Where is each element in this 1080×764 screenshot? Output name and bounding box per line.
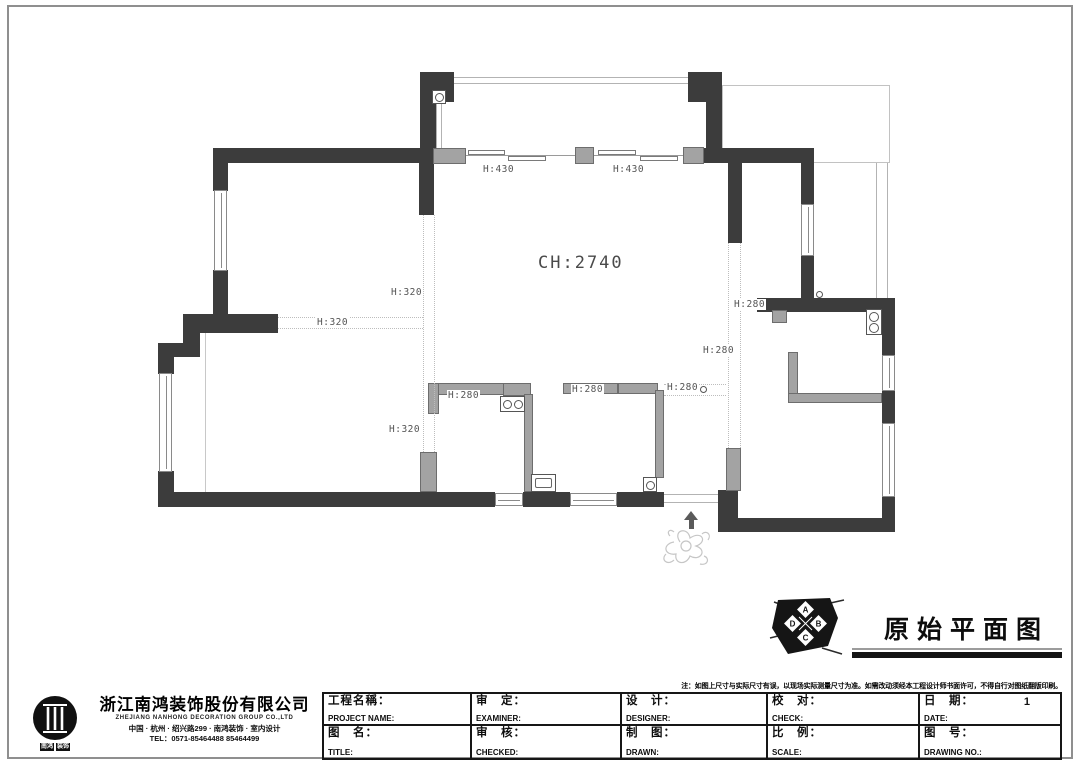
company-services: 中国 · 杭州 · 绍兴路299 · 南鸿装饰 · 室内设计 — [89, 724, 320, 734]
disclaimer-note: 注：如图上尺寸与实际尺寸有误，以现场实际测量尺寸为准。如需改动须经本工程设计师书… — [681, 681, 1062, 691]
wall-segment — [882, 497, 895, 532]
wall-segment — [213, 148, 434, 163]
company-logo-badge: 南鸿 — [40, 743, 54, 751]
cell-date: 日 期： DATE: 1 — [920, 694, 1060, 726]
wall-segment — [801, 255, 814, 302]
door-stop-marker — [816, 291, 823, 298]
door-stop-marker — [700, 386, 707, 393]
beam-dashed-line — [740, 243, 741, 448]
logo-letter-b: B — [816, 620, 822, 629]
window — [882, 355, 895, 391]
height-label: H:280 — [666, 382, 699, 393]
stove-fixture — [866, 309, 882, 335]
height-label: H:320 — [316, 317, 349, 328]
height-label: H:280 — [702, 345, 735, 356]
beam-dashed-line — [434, 215, 435, 452]
sliding-door-leaf — [640, 156, 678, 161]
cell-drawn: 制 图： DRAWN: — [622, 726, 768, 758]
window — [159, 373, 172, 472]
sliding-door-leaf — [598, 150, 636, 155]
sliding-door-leaf — [468, 150, 505, 155]
sliding-door-leaf — [508, 156, 546, 161]
partition-wall-segment — [788, 393, 882, 403]
logo-letter-a: A — [803, 606, 809, 615]
date-value: 1 — [1024, 696, 1030, 708]
partition-wall-segment — [618, 383, 658, 394]
height-label: H:280 — [571, 384, 604, 395]
compass-logo-icon: A B C D — [766, 594, 846, 660]
cell-project-name: 工程名稱： PROJECT NAME: — [324, 694, 472, 726]
company-tel: TEL：0571-85464488 85464499 — [89, 734, 320, 744]
height-label: H:320 — [388, 424, 421, 435]
company-block: 南鸿 装饰 浙江南鸿装饰股份有限公司 ZHEJIANG NANHONG DECO… — [30, 694, 320, 758]
window — [570, 493, 617, 506]
wall-segment — [420, 72, 436, 152]
beam-dashed-line — [423, 215, 424, 452]
partition-wall-segment — [433, 148, 466, 164]
title-underline — [852, 648, 1062, 650]
wall-segment — [419, 163, 434, 215]
cell-designer: 设 计： DESIGNER: — [622, 694, 768, 726]
floor-drain-fixture — [432, 90, 446, 104]
window — [882, 423, 895, 497]
beam-dashed-line — [278, 317, 423, 318]
cell-checked: 审 核： CHECKED: — [472, 726, 622, 758]
wall-segment — [213, 148, 228, 191]
cell-check: 校 对： CHECK: — [768, 694, 920, 726]
cell-scale: 比 例： SCALE: — [768, 726, 920, 758]
balcony-rail — [453, 77, 689, 84]
partition-wall-segment — [575, 147, 594, 164]
entry-threshold — [664, 494, 719, 503]
title-underline-bold — [852, 652, 1062, 658]
wall-segment — [737, 518, 895, 532]
cell-drawing-no: 图 号： DRAWING NO.: — [920, 726, 1060, 758]
wall-segment — [706, 72, 722, 152]
wall-segment — [698, 148, 814, 163]
plant-sketch-icon — [650, 522, 722, 568]
partition-wall-segment — [772, 310, 787, 323]
drawing-sheet: H:430 H:430 CH:2740 H:320 H:320 H:320 H:… — [0, 0, 1080, 764]
company-name-en: ZHEJIANG NANHONG DECORATION GROUP CO.,LT… — [89, 714, 320, 722]
window — [495, 493, 523, 506]
wall-segment — [728, 163, 742, 243]
wall-segment — [523, 492, 570, 507]
wall-segment — [882, 390, 895, 423]
beam-dashed-line — [278, 328, 423, 329]
height-label: H:320 — [390, 287, 423, 298]
cell-examiner: 审 定： EXAMINER: — [472, 694, 622, 726]
partition-wall-segment — [683, 147, 704, 164]
beam-dashed-line — [664, 395, 726, 396]
company-logo-badge: 装饰 — [56, 743, 70, 751]
wall-segment — [158, 492, 495, 507]
drawing-title: 原始平面图 — [884, 610, 1049, 646]
wall-segment — [158, 343, 174, 374]
partition-wall-segment — [726, 448, 741, 491]
cell-drawing-name: 图 名： TITLE: — [324, 726, 472, 758]
ceiling-height-label: CH:2740 — [538, 253, 624, 273]
company-logo-icon — [31, 694, 79, 742]
washer-fixture — [531, 474, 556, 492]
height-label: H:430 — [482, 164, 515, 175]
wall-segment — [617, 492, 664, 507]
sink-fixture — [500, 396, 525, 412]
window — [214, 190, 227, 271]
partition-wall-segment — [655, 390, 664, 478]
partition-wall-segment — [420, 452, 437, 492]
window — [801, 204, 814, 256]
wall-face-line — [205, 333, 206, 492]
height-label: H:280 — [447, 390, 480, 401]
balcony-rail — [436, 100, 442, 150]
logo-letter-d: D — [790, 620, 796, 629]
exterior-thin-wall — [876, 163, 888, 299]
title-block-table: 工程名稱： PROJECT NAME: 审 定： EXAMINER: 设 计： … — [322, 692, 1062, 760]
wall-segment — [213, 270, 228, 318]
toilet-fixture — [643, 477, 657, 492]
height-label: H:280 — [733, 299, 766, 310]
wall-segment — [801, 163, 814, 205]
height-label: H:430 — [612, 164, 645, 175]
company-name: 浙江南鸿装饰股份有限公司 — [89, 695, 320, 714]
logo-letter-c: C — [803, 634, 809, 643]
